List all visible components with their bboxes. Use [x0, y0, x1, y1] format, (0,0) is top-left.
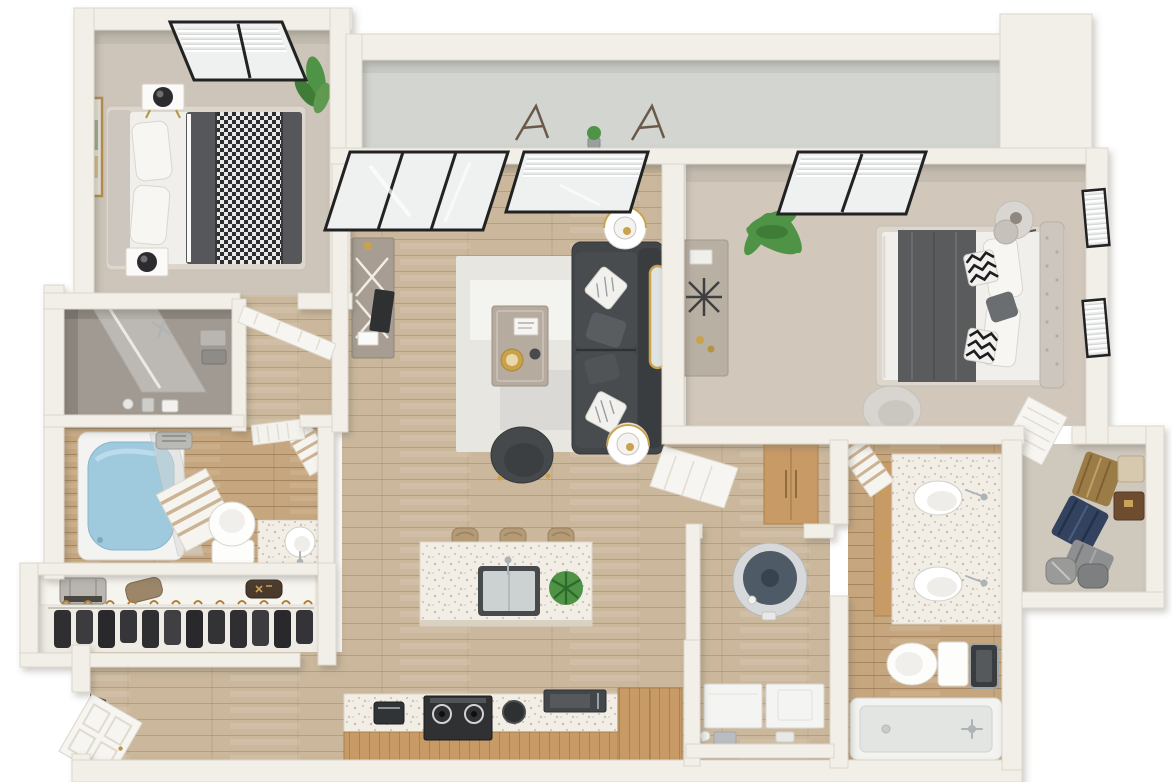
wall-bath1-right: [318, 427, 334, 569]
suitcase: [60, 578, 106, 604]
wall-bed1-bottom-left: [44, 293, 240, 309]
bed2-headboard: [1040, 222, 1064, 388]
canister: [503, 701, 525, 723]
exhaust-fan: [156, 432, 192, 449]
bedroom1-window: [170, 22, 306, 80]
vase: [530, 349, 541, 360]
dresser-tray: [690, 250, 712, 264]
toiletry-3: [162, 400, 178, 412]
wall-balcony-column: [1000, 14, 1092, 150]
heater-valve: [748, 596, 756, 604]
wall-bath2-left-upper: [830, 440, 848, 524]
gold-bottle-2: [708, 346, 715, 353]
dresser: [678, 240, 728, 376]
dryer: [766, 684, 824, 728]
bedroom2-window-right-2: [1083, 299, 1110, 357]
wall-utility-top-right: [804, 524, 834, 538]
wall-balcony-left: [346, 34, 362, 150]
toilet-bath2: [887, 642, 998, 688]
towel-stack-2: [202, 350, 226, 364]
bed1-houndstooth-throw: [216, 112, 282, 264]
wall-entry-left-upper: [72, 645, 90, 692]
wall-closet-left: [20, 563, 38, 665]
wall-shower-bottom: [44, 415, 244, 427]
lamp-top: [153, 87, 173, 107]
wall-left-block: [44, 285, 64, 579]
accent-chair: [491, 427, 553, 483]
living-window: [506, 152, 648, 212]
floor-plan-render: [0, 0, 1172, 782]
wall-closet-bottom: [20, 653, 300, 667]
microwave: [544, 690, 606, 712]
bed1-pillow-2: [130, 185, 171, 246]
table-book: [514, 318, 538, 335]
balcony-floor: [362, 60, 1002, 148]
wall-closet2-right: [1146, 426, 1164, 608]
heater-label: [762, 612, 776, 620]
wall-bath2-right: [1002, 440, 1022, 770]
nightstand-bottom: [126, 248, 168, 276]
storage-box-brown: [1114, 492, 1144, 520]
floor-plan-svg: [0, 0, 1172, 782]
balcony-plant: [587, 126, 601, 148]
bed2-pillow-chevron-2: [963, 328, 998, 365]
toiletry-1: [123, 399, 133, 409]
tub-drain-1: [97, 537, 103, 543]
tall-cabinet: [618, 688, 682, 766]
wall-closet-top: [20, 563, 336, 575]
side-table-lamp-bottom: [607, 423, 649, 465]
console-book: [358, 332, 378, 345]
hanging-clothes-rod: [48, 601, 314, 648]
bed-2: [876, 222, 1066, 388]
wall-living-bed2: [662, 164, 684, 430]
wall-bottom-outer: [72, 760, 1022, 782]
balcony-wall-shade: [362, 60, 1002, 73]
wall-bath2-left-lower: [830, 596, 848, 768]
lamp-bottom: [137, 252, 157, 272]
kitchen-island: [420, 542, 592, 626]
bed2-runner: [898, 230, 976, 382]
console-candle: [364, 242, 372, 250]
bed1-pillow-1: [131, 120, 173, 181]
wall-utility-bottom: [686, 744, 834, 758]
wall-closet2-bottom: [1004, 592, 1164, 608]
toiletry-2: [142, 398, 154, 412]
vanity-double: [874, 454, 1002, 624]
starburst-decor: [686, 278, 722, 316]
media-console: [352, 238, 395, 358]
sliding-glass-door: [325, 152, 508, 230]
toilet-tank: [938, 642, 968, 686]
bedroom2-window-top: [778, 152, 926, 214]
washer: [704, 684, 762, 728]
linen-cabinet: [764, 444, 818, 524]
espresso-machine: [374, 702, 404, 724]
wall-balcony-parapet: [346, 34, 1022, 60]
wall-bed1-left: [74, 8, 94, 309]
coffee-table: [492, 306, 548, 386]
storage-box-beige: [1118, 456, 1144, 482]
kitchen-counter: [344, 688, 682, 768]
bed1-headboard: [108, 110, 132, 266]
duffel-bag-2: [1078, 564, 1108, 588]
island-sink: [478, 558, 540, 617]
storage-box-gray: [714, 732, 736, 744]
toilet-bath1: [209, 502, 255, 564]
island-plant: [549, 571, 583, 605]
gold-bottle: [696, 336, 704, 344]
bed2-pillow-chevron-1: [963, 249, 999, 287]
range: [424, 696, 492, 740]
bedroom2-window-right-1: [1083, 189, 1110, 247]
towel-stack-1: [200, 330, 226, 346]
storage-box-white: [776, 732, 794, 742]
bag-dark: [246, 580, 282, 598]
wall-closet-right: [318, 563, 336, 665]
tub-drain: [882, 725, 890, 733]
bed-1: [106, 106, 306, 270]
wall-bath1-top-right: [300, 415, 332, 427]
tub-shower: [850, 698, 1002, 760]
